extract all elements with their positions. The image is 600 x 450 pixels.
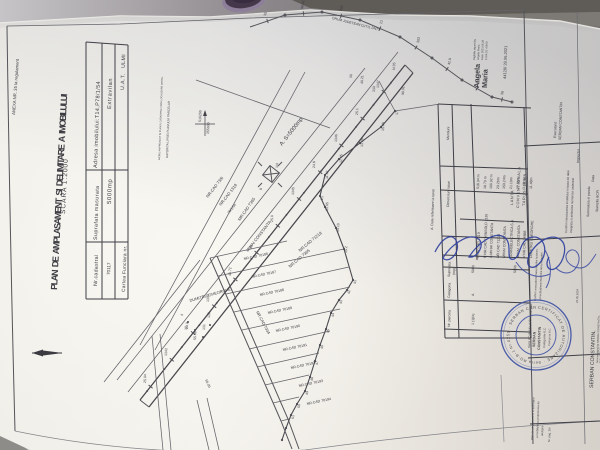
svg-text:55.08: 55.08 xyxy=(193,331,197,340)
svg-text:18.79 m: 18.79 m xyxy=(483,176,487,189)
svg-text:Nr. pag. 2/4: Nr. pag. 2/4 xyxy=(547,427,552,442)
svg-text:21: 21 xyxy=(320,196,324,200)
svg-text:(mp): (mp) xyxy=(452,268,456,275)
svg-text:U.A.T. ULMI: U.A.T. ULMI xyxy=(120,54,127,90)
svg-text:131: 131 xyxy=(202,324,206,330)
svg-text:Inspector: Inspector xyxy=(576,148,581,163)
svg-text:49: 49 xyxy=(305,391,309,395)
svg-text:11:04:31 +03'00': 11:04:31 +03'00' xyxy=(484,41,489,61)
svg-text:40.72: 40.72 xyxy=(228,267,232,276)
svg-text:21.19m: 21.19m xyxy=(509,177,513,189)
svg-text:25.0: 25.0 xyxy=(270,215,274,222)
svg-text:1347: 1347 xyxy=(376,80,380,88)
svg-text:130: 130 xyxy=(207,312,211,318)
svg-text:LANTA: LANTA xyxy=(510,190,515,205)
svg-text:38: 38 xyxy=(500,91,505,96)
svg-text:Date: 2021.06.28: Date: 2021.06.28 xyxy=(480,39,485,60)
svg-text:Nr.cadastral: Nr.cadastral xyxy=(93,255,100,286)
svg-text:8: 8 xyxy=(259,188,263,190)
svg-text:14.10: 14.10 xyxy=(336,223,340,232)
svg-text:40.21: 40.21 xyxy=(360,75,364,84)
svg-text:SERBAN: SERBAN xyxy=(532,331,537,347)
svg-text:70117: 70117 xyxy=(106,262,111,275)
svg-text:Digitally signed by: Digitally signed by xyxy=(472,38,477,60)
svg-text:15.2: 15.2 xyxy=(344,246,348,253)
svg-text:Angela Maria: Angela Maria xyxy=(476,44,481,60)
svg-text:NR.CAD 71218: NR.CAD 71218 xyxy=(496,234,501,258)
svg-text:36: 36 xyxy=(349,74,353,78)
svg-text:51: 51 xyxy=(291,415,295,419)
svg-text:11.48m: 11.48m xyxy=(529,177,533,189)
svg-text:42: 42 xyxy=(347,290,351,294)
svg-text:1/4: 1/4 xyxy=(275,163,279,168)
svg-text:35: 35 xyxy=(263,12,268,17)
svg-text:Suprafata: Suprafata xyxy=(447,262,452,277)
svg-text:90.01: 90.01 xyxy=(401,86,405,95)
svg-text:13.06: 13.06 xyxy=(360,138,364,147)
svg-text:Categoriile B,C: Categoriile B,C xyxy=(542,327,547,348)
svg-text:355600: 355600 xyxy=(206,122,210,134)
svg-text:518.94 m: 518.94 m xyxy=(476,174,481,189)
svg-text:Extravilan: Extravilan xyxy=(107,78,114,109)
svg-text:44: 44 xyxy=(331,313,335,317)
svg-text:21: 21 xyxy=(379,20,384,25)
svg-text:24.8: 24.8 xyxy=(312,161,316,168)
svg-text:25.04: 25.04 xyxy=(143,374,147,383)
svg-text:1 (1)Pe: 1 (1)Pe xyxy=(471,313,475,325)
svg-text:46: 46 xyxy=(320,345,324,349)
svg-text:Executant:: Executant: xyxy=(553,121,558,138)
svg-text:50: 50 xyxy=(297,404,301,408)
svg-text:25.1: 25.1 xyxy=(355,108,359,115)
svg-text:Maria: Maria xyxy=(480,68,490,88)
svg-text:Categoria B,C: Categoria B,C xyxy=(547,328,552,346)
svg-text:Nr. parcela: Nr. parcela xyxy=(447,310,452,327)
svg-text:41: 41 xyxy=(353,280,357,284)
svg-text:29.26m: 29.26m xyxy=(496,177,500,189)
svg-text:5000mp: 5000mp xyxy=(107,179,114,205)
svg-text:1346: 1346 xyxy=(334,134,338,142)
svg-text:12.45: 12.45 xyxy=(339,154,343,163)
svg-text:Stampila BCPI: Stampila BCPI xyxy=(595,190,600,212)
svg-text:17: 17 xyxy=(395,111,399,115)
svg-text:4: 4 xyxy=(180,314,184,316)
svg-text:43: 43 xyxy=(339,300,343,304)
svg-text:N 35: N 35 xyxy=(392,62,396,70)
svg-text:dezlipire: dezlipire xyxy=(540,425,544,436)
svg-text:1345: 1345 xyxy=(291,187,295,195)
svg-text:Mentiuni: Mentiuni xyxy=(446,126,450,140)
svg-text:Data: Data xyxy=(591,175,595,182)
svg-text:5000: 5000 xyxy=(513,265,517,273)
svg-text:23.05.2024: 23.05.2024 xyxy=(575,288,580,303)
svg-text:47: 47 xyxy=(315,361,319,365)
svg-text:5000: 5000 xyxy=(471,265,475,273)
svg-text:339: 339 xyxy=(372,86,376,92)
svg-text:159.24m: 159.24m xyxy=(502,175,506,189)
svg-text:1343: 1343 xyxy=(164,348,168,356)
svg-text:11.42: 11.42 xyxy=(325,170,329,179)
svg-text:15.08: 15.08 xyxy=(381,122,385,131)
svg-text:12: 12 xyxy=(184,326,188,330)
svg-text:13.05: 13.05 xyxy=(325,202,329,211)
svg-text:100.92 m: 100.92 m xyxy=(489,174,494,189)
svg-text:Categoria: Categoria xyxy=(447,283,452,298)
svg-text:516200: 516200 xyxy=(198,110,202,122)
